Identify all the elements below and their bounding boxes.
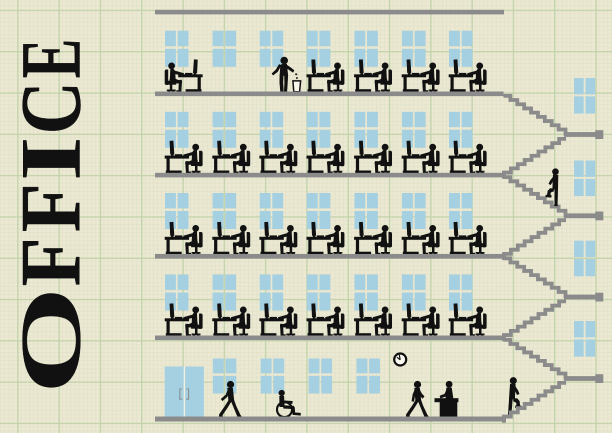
svg-text:F: F <box>3 183 98 232</box>
svg-text:O: O <box>3 287 98 394</box>
svg-text:I: I <box>3 137 99 181</box>
svg-text:C: C <box>4 82 99 135</box>
svg-text:E: E <box>3 39 98 79</box>
svg-text:F: F <box>3 237 98 286</box>
